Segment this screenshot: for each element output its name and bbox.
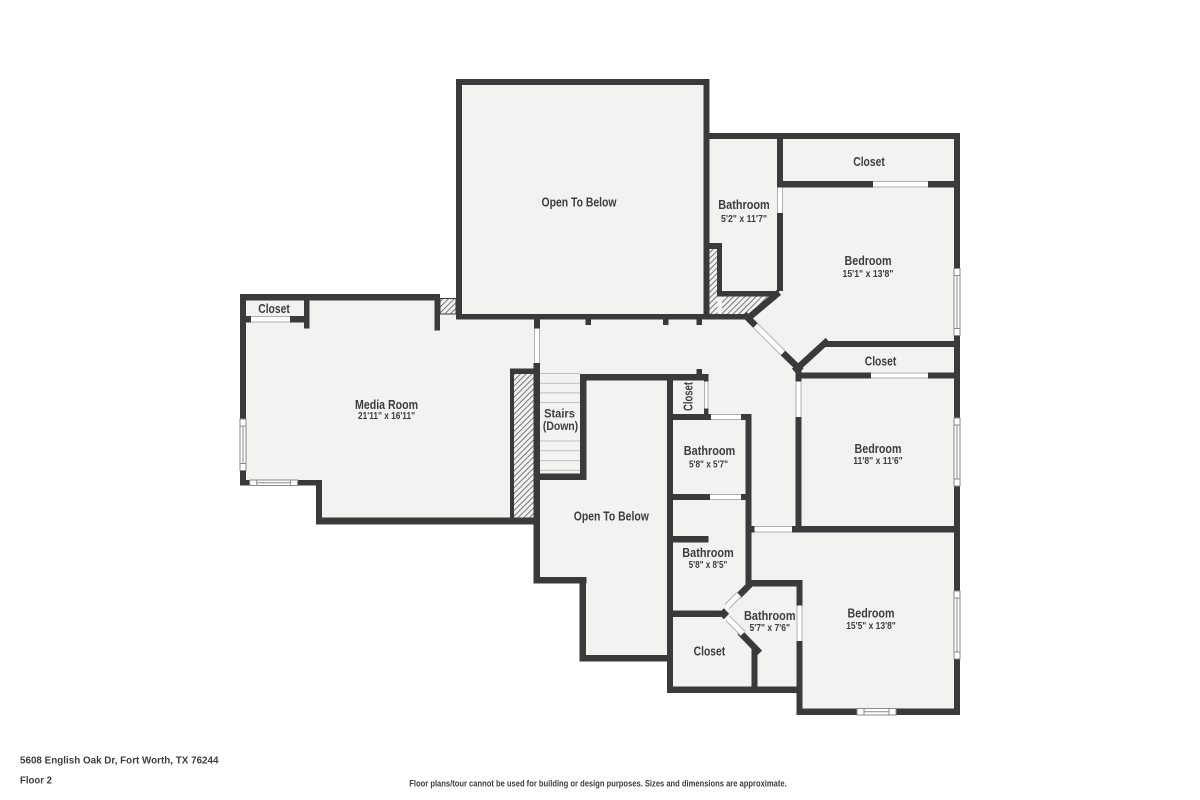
svg-text:Closet: Closet xyxy=(258,301,290,316)
svg-text:Bathroom: Bathroom xyxy=(682,545,734,560)
svg-text:15'1" x 13'8": 15'1" x 13'8" xyxy=(843,269,894,280)
svg-text:Bathroom: Bathroom xyxy=(684,443,736,458)
svg-text:Open To Below: Open To Below xyxy=(574,508,650,523)
svg-text:Closet: Closet xyxy=(865,353,897,368)
svg-text:5608 English Oak Dr, Fort Wort: 5608 English Oak Dr, Fort Worth, TX 7624… xyxy=(20,755,219,767)
svg-text:Bathroom: Bathroom xyxy=(744,608,796,623)
svg-text:Closet: Closet xyxy=(853,154,885,169)
svg-text:Closet: Closet xyxy=(694,643,726,658)
svg-text:5'8" x 8'5": 5'8" x 8'5" xyxy=(689,560,728,571)
svg-text:5'2" x 11'7": 5'2" x 11'7" xyxy=(721,214,767,225)
svg-text:15'5" x 13'8": 15'5" x 13'8" xyxy=(846,621,896,632)
svg-text:21'11" x 16'11": 21'11" x 16'11" xyxy=(358,411,415,422)
svg-text:Bathroom: Bathroom xyxy=(718,197,770,212)
svg-text:Closet: Closet xyxy=(682,381,696,411)
svg-text:Media Room: Media Room xyxy=(355,397,418,412)
svg-text:Stairs: Stairs xyxy=(544,409,575,421)
svg-text:Floor plans/tour cannot be use: Floor plans/tour cannot be used for buil… xyxy=(409,779,786,789)
svg-text:5'7" x 7'6": 5'7" x 7'6" xyxy=(750,623,791,634)
svg-text:(Down): (Down) xyxy=(543,421,578,433)
svg-text:11'8" x 11'6": 11'8" x 11'6" xyxy=(853,456,903,467)
svg-text:Bedroom: Bedroom xyxy=(848,605,895,620)
svg-text:Bedroom: Bedroom xyxy=(855,441,902,456)
svg-text:5'8" x 5'7": 5'8" x 5'7" xyxy=(689,459,728,470)
svg-text:Bedroom: Bedroom xyxy=(845,253,892,268)
svg-text:Floor 2: Floor 2 xyxy=(20,775,52,787)
svg-text:Open To Below: Open To Below xyxy=(542,194,618,209)
